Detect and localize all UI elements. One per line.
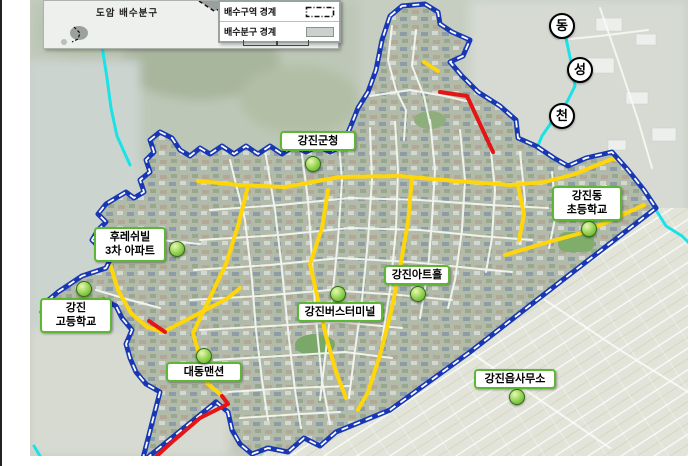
stream-name-badge: 동: [549, 13, 575, 39]
gangjin-bus-terminal-label: 강진버스터미널: [297, 302, 383, 322]
page-left-border: [0, 0, 2, 466]
map-annotations: 동성천강진군청강진동초등학교후레쉬빌3차 아파트강진고등학교대동맨션강진버스터미…: [0, 0, 700, 466]
gangjin-high-school-marker: [76, 281, 92, 297]
gangjindong-elementary-school-label: 강진동초등학교: [552, 186, 622, 221]
gangjin-high-school-label: 강진고등학교: [40, 298, 112, 333]
gangjin-eup-office-label: 강진읍사무소: [474, 369, 556, 389]
freshville-3cha-apartment-label: 후레쉬빌3차 아파트: [94, 227, 166, 262]
daedong-mansion-label: 대동맨션: [166, 362, 242, 382]
gangjin-art-hall-label: 강진아트홀: [384, 265, 450, 285]
gangjin-county-office-label: 강진군청: [280, 131, 356, 151]
daedong-mansion-marker: [196, 348, 212, 364]
gangjin-eup-office-marker: [509, 389, 525, 405]
gangjin-art-hall-marker: [410, 286, 426, 302]
stream-name-badge: 성: [567, 57, 593, 83]
drainage-district-map-page: 도암 배수분구 배수구역 경계 배수분구 경계 동성천강진군청강진동초등학교후레…: [0, 0, 700, 466]
gangjin-county-office-marker: [305, 156, 321, 172]
freshville-3cha-apartment-marker: [169, 241, 185, 257]
stream-name-badge: 천: [549, 103, 575, 129]
gangjin-bus-terminal-marker: [330, 286, 346, 302]
gangjindong-elementary-school-marker: [581, 221, 597, 237]
